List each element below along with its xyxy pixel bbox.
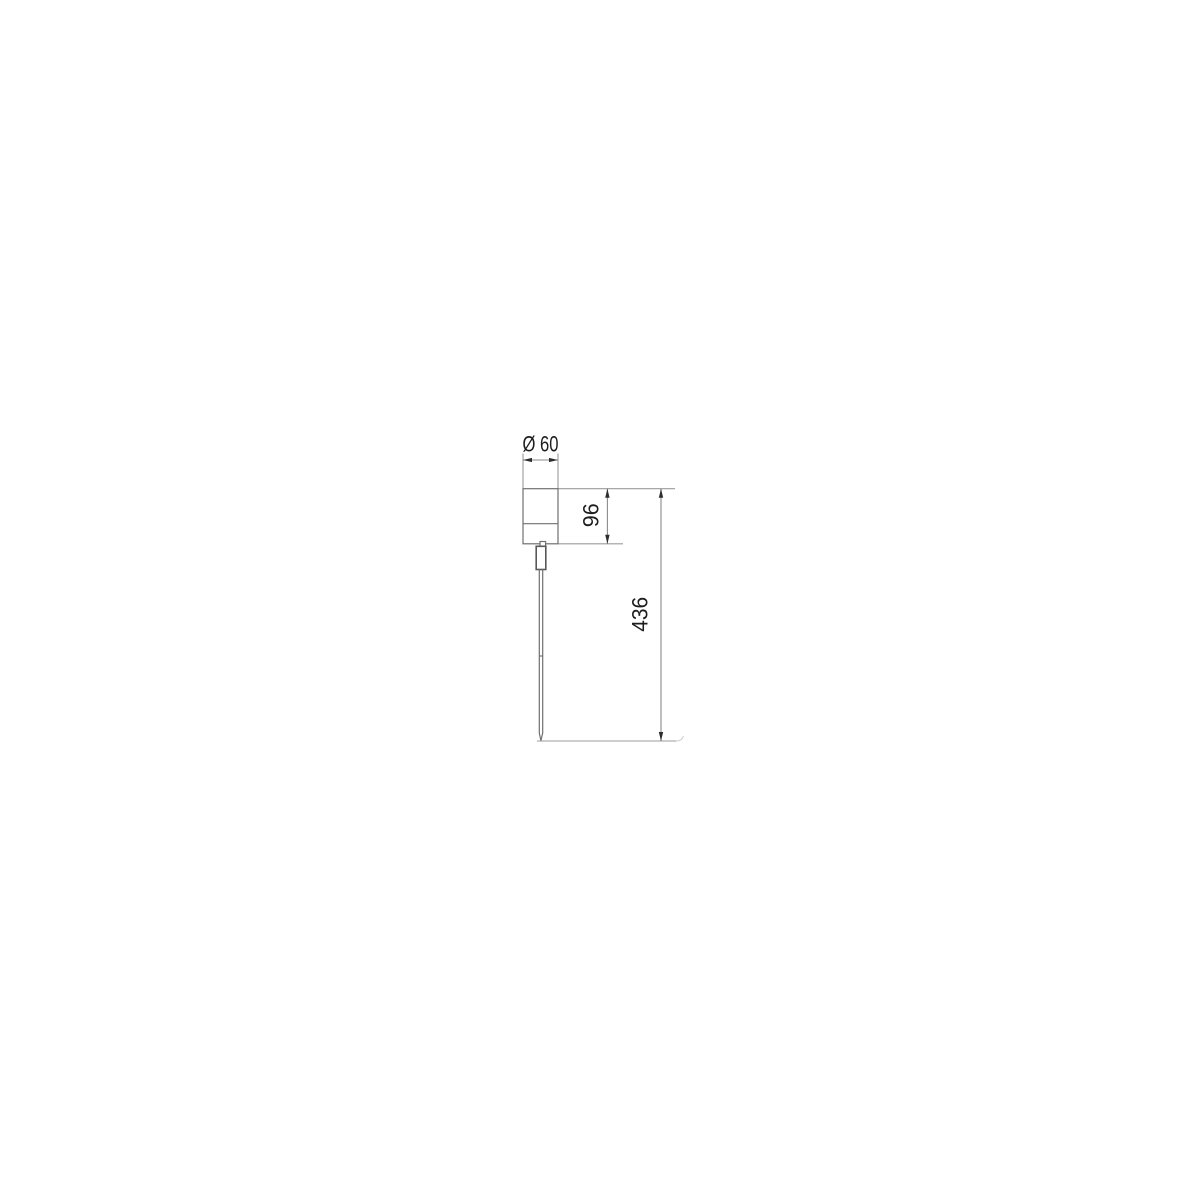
arrow-up-96-icon [605,489,609,498]
cylinder-body [523,489,558,544]
arrow-right-icon [549,458,558,462]
diameter-label: Ø 60 [523,432,559,457]
arrow-left-icon [523,458,532,462]
spike-connector-block [536,546,546,569]
overall-height-label: 436 [628,597,653,632]
drawing-canvas: Ø 60 96 436 [0,0,1200,1200]
technical-dimension-drawing: Ø 60 96 436 [0,0,1200,1200]
arrow-down-96-icon [605,535,609,544]
spike-tip [539,733,542,741]
arrow-up-436-icon [659,489,663,498]
body-height-label: 96 [579,503,604,527]
extension-line-tail [676,736,684,741]
arrow-down-436-icon [659,732,663,741]
fixture-outline [523,489,558,741]
